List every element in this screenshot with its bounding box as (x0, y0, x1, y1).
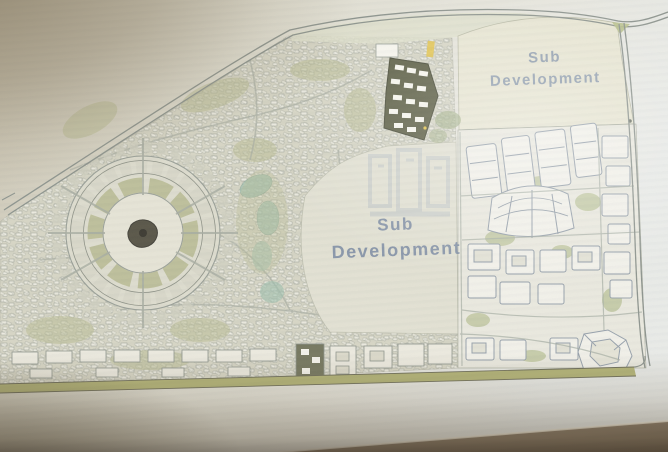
master-plan-map: Sub Development Sub Development (0, 0, 668, 452)
photo-of-master-plan: Sub Development Sub Development (0, 0, 668, 452)
paper-grain-texture (0, 0, 668, 452)
